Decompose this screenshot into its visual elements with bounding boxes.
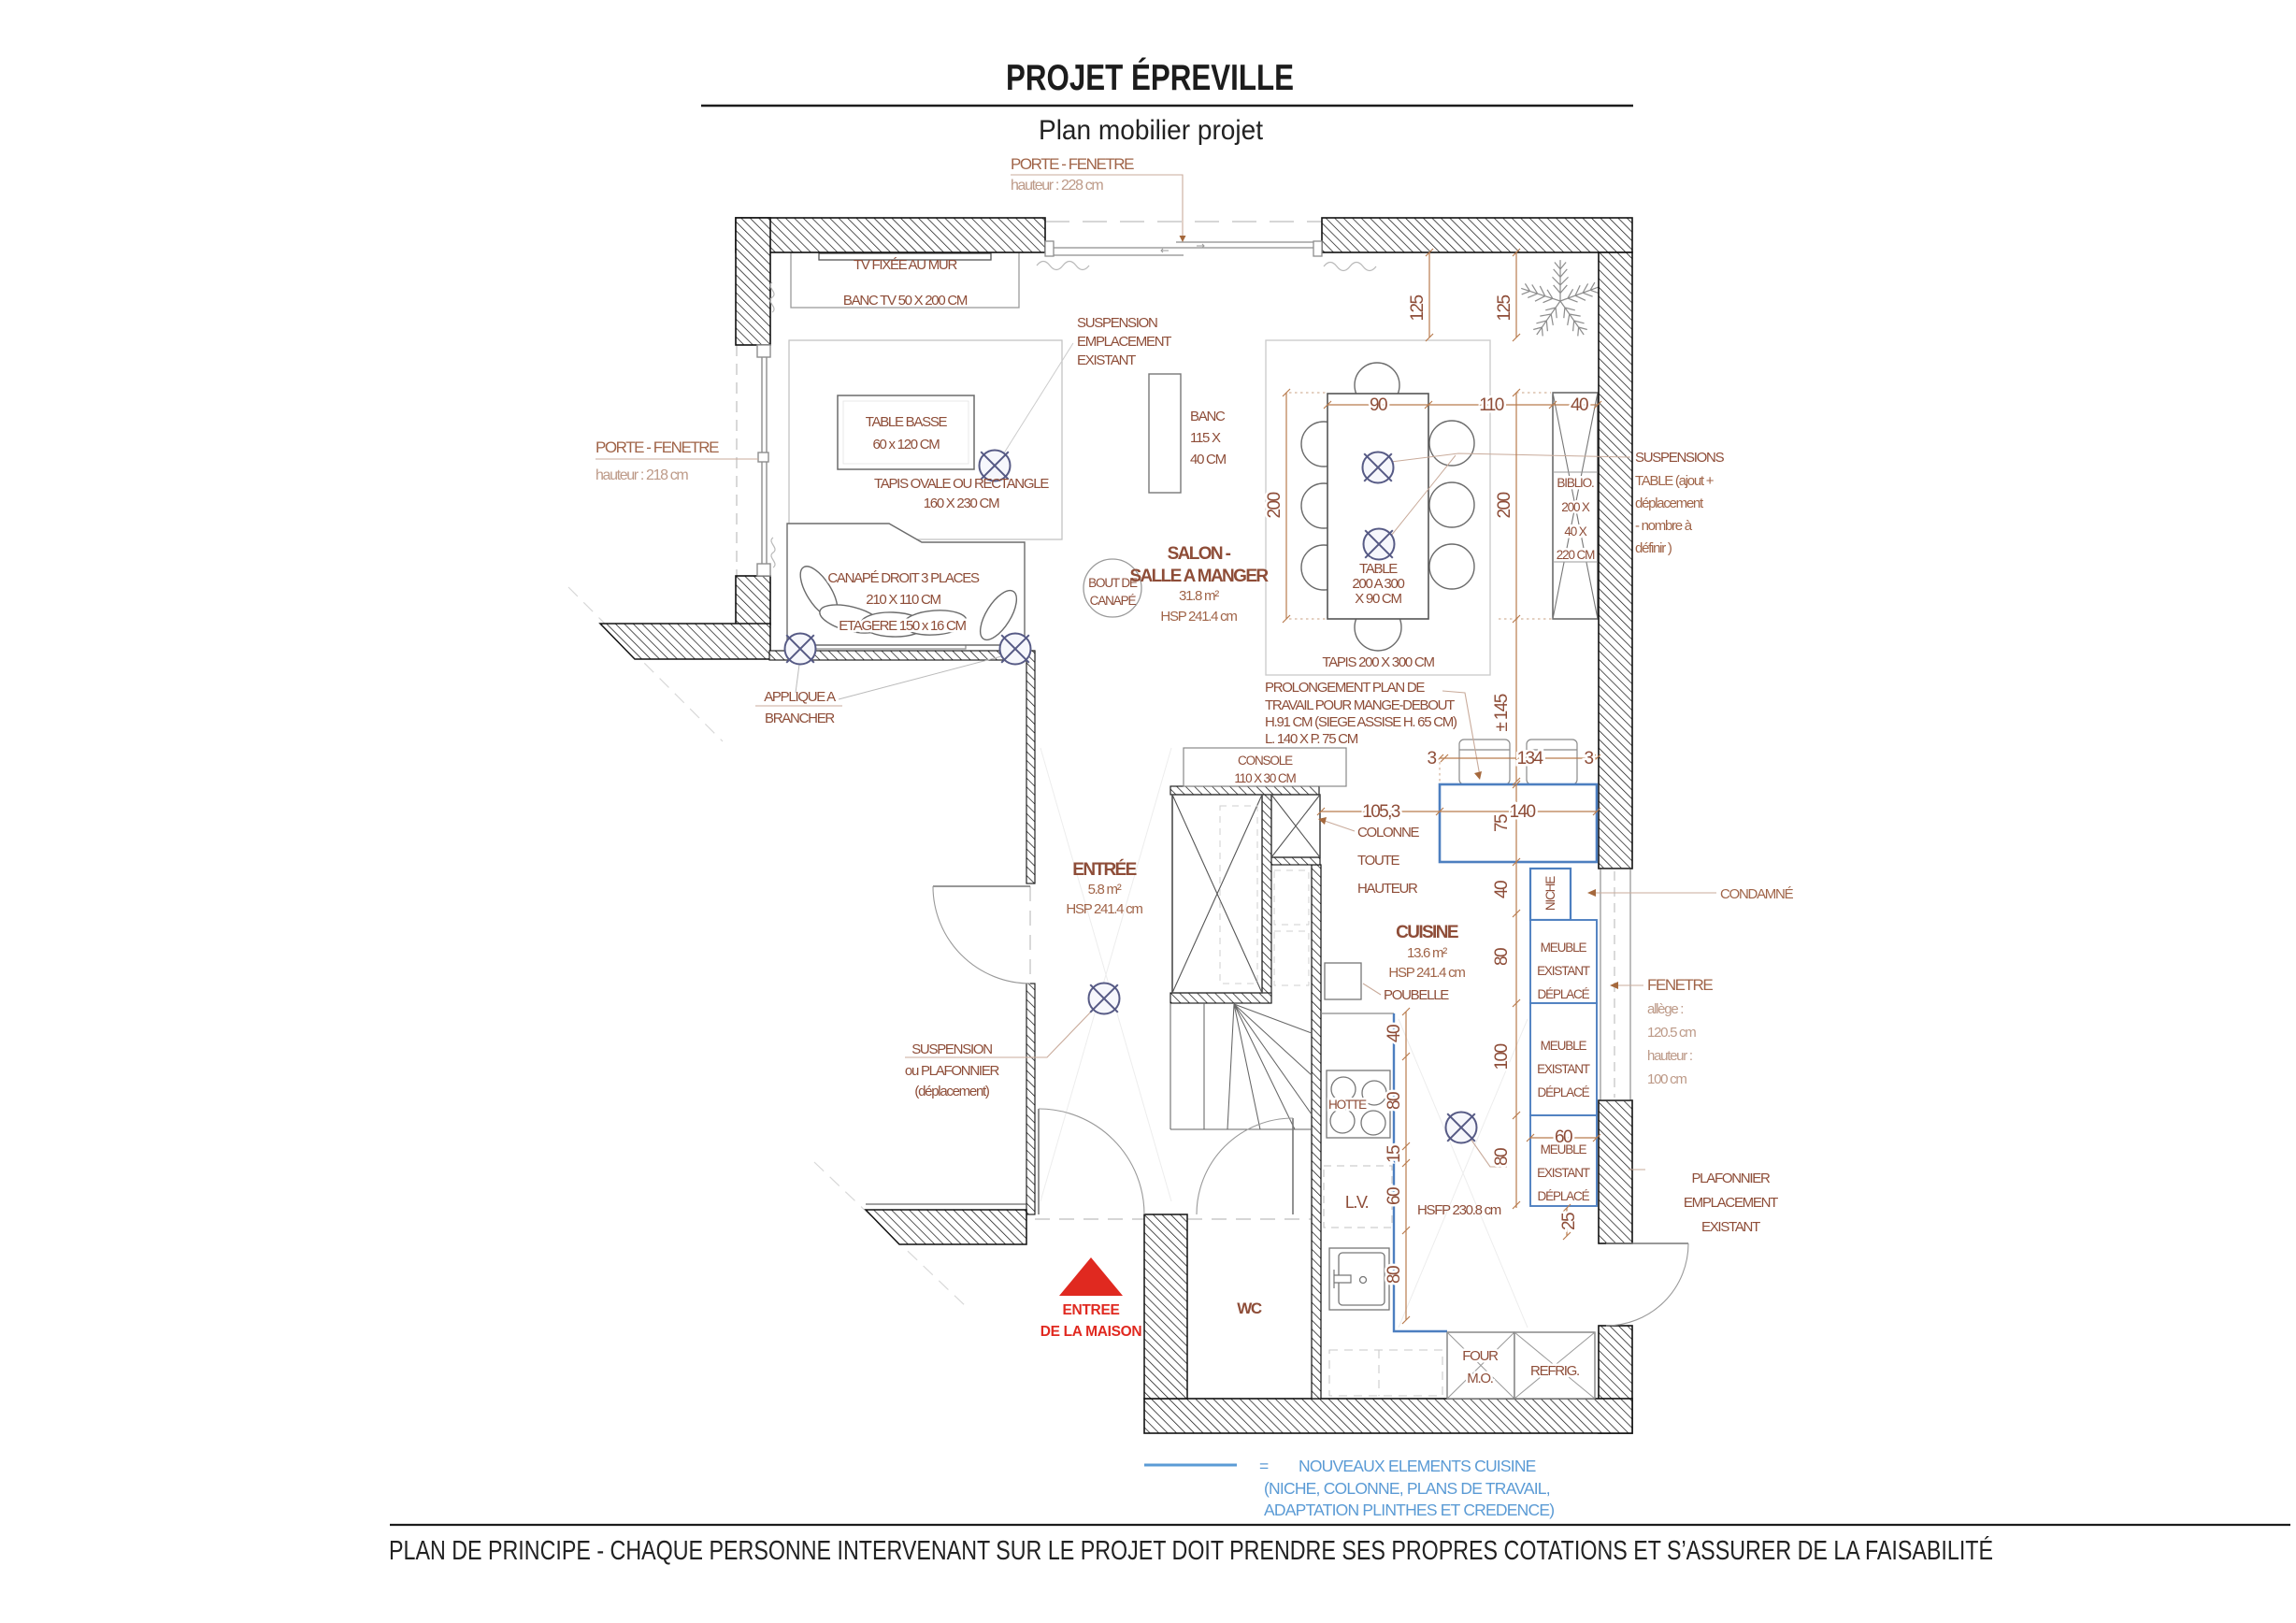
svg-text:60: 60 xyxy=(1385,1187,1404,1205)
svg-text:M.O.: M.O. xyxy=(1467,1371,1493,1386)
svg-text:TAPIS OVALE OU RECTANGLE: TAPIS OVALE OU RECTANGLE xyxy=(874,476,1049,492)
svg-text:75: 75 xyxy=(1492,814,1512,832)
svg-text:HAUTEUR: HAUTEUR xyxy=(1357,881,1418,897)
svg-text:200 A 300: 200 A 300 xyxy=(1352,576,1404,592)
svg-text:HOTTE: HOTTE xyxy=(1328,1098,1367,1112)
svg-text:DÉPLACÉ: DÉPLACÉ xyxy=(1538,1189,1590,1203)
svg-text:déplacement: déplacement xyxy=(1635,496,1704,511)
svg-text:NICHE: NICHE xyxy=(1543,876,1557,911)
svg-text:allège :: allège : xyxy=(1647,1001,1683,1017)
svg-text:200 X: 200 X xyxy=(1561,500,1590,514)
svg-text:40: 40 xyxy=(1385,1025,1404,1042)
svg-text:125: 125 xyxy=(1408,295,1428,322)
svg-text:hauteur :: hauteur : xyxy=(1647,1048,1692,1064)
svg-text:TABLE BASSE: TABLE BASSE xyxy=(866,414,948,430)
svg-text:(NICHE, COLONNE, PLANS DE TRAV: (NICHE, COLONNE, PLANS DE TRAVAIL, xyxy=(1264,1479,1550,1498)
svg-text:160 X 230 CM: 160 X 230 CM xyxy=(924,496,999,511)
svg-text:hauteur : 228 cm: hauteur : 228 cm xyxy=(1011,178,1103,194)
svg-text:FENETRE: FENETRE xyxy=(1647,976,1713,994)
svg-text:80: 80 xyxy=(1492,948,1512,966)
svg-text:BIBLIO.: BIBLIO. xyxy=(1557,476,1594,490)
svg-text:CUISINE: CUISINE xyxy=(1396,923,1458,942)
svg-text:TV FIXÉE AU MUR: TV FIXÉE AU MUR xyxy=(854,257,958,273)
svg-text:13.6 m²: 13.6 m² xyxy=(1407,945,1447,961)
svg-text:ETAGERE 150 x 16 CM: ETAGERE 150 x 16 CM xyxy=(839,618,966,634)
svg-text:NOUVEAUX ELEMENTS CUISINE: NOUVEAUX ELEMENTS CUISINE xyxy=(1299,1457,1536,1475)
svg-text:60: 60 xyxy=(1555,1127,1572,1147)
svg-text:15: 15 xyxy=(1385,1145,1404,1163)
svg-text:210 X 110 CM: 210 X 110 CM xyxy=(866,592,940,608)
svg-text:ou PLAFONNIER: ou PLAFONNIER xyxy=(905,1063,1000,1079)
svg-text:CANAPÉ DROIT 3 PLACES: CANAPÉ DROIT 3 PLACES xyxy=(827,570,980,586)
svg-text:WC: WC xyxy=(1237,1300,1262,1317)
svg-text:MEUBLE: MEUBLE xyxy=(1541,1039,1587,1053)
svg-text:SUSPENSIONS: SUSPENSIONS xyxy=(1635,450,1725,466)
svg-text:25: 25 xyxy=(1559,1213,1579,1230)
svg-text:TRAVAIL POUR MANGE-DEBOUT: TRAVAIL POUR MANGE-DEBOUT xyxy=(1265,697,1455,713)
svg-text:PROLONGEMENT PLAN DE: PROLONGEMENT PLAN DE xyxy=(1265,680,1425,696)
svg-text:40: 40 xyxy=(1571,395,1588,415)
svg-text:5.8 m²: 5.8 m² xyxy=(1088,882,1122,898)
svg-text:TAPIS 200 X 300 CM: TAPIS 200 X 300 CM xyxy=(1322,654,1434,670)
svg-text:hauteur : 218 cm: hauteur : 218 cm xyxy=(596,467,688,483)
svg-text:SUSPENSION: SUSPENSION xyxy=(1077,315,1157,331)
svg-text:EXISTANT: EXISTANT xyxy=(1537,964,1590,978)
svg-text:BANC TV 50 X 200 CM: BANC TV 50 X 200 CM xyxy=(843,293,968,309)
svg-text:PLAFONNIER: PLAFONNIER xyxy=(1691,1171,1771,1186)
svg-text:SALLE A MANGER: SALLE A MANGER xyxy=(1130,567,1270,586)
svg-text:EXISTANT: EXISTANT xyxy=(1077,352,1136,368)
svg-text:80: 80 xyxy=(1385,1092,1404,1110)
svg-text:40 X: 40 X xyxy=(1564,524,1586,539)
svg-text:H.91 CM (SIEGE ASSISE H. 65 CM: H.91 CM (SIEGE ASSISE H. 65 CM) xyxy=(1265,714,1457,730)
svg-text:POUBELLE: POUBELLE xyxy=(1384,987,1449,1003)
svg-text:APPLIQUE A: APPLIQUE A xyxy=(764,689,836,705)
svg-text:100: 100 xyxy=(1492,1044,1512,1070)
svg-text:HSP 241.4 cm: HSP 241.4 cm xyxy=(1066,901,1142,917)
svg-text:ENTREE: ENTREE xyxy=(1062,1302,1119,1318)
svg-text:115 X: 115 X xyxy=(1190,430,1221,446)
svg-text:60 x 120 CM: 60 x 120 CM xyxy=(872,437,940,452)
svg-text:L. 140 X P. 75 CM: L. 140 X P. 75 CM xyxy=(1265,731,1358,747)
svg-text:TABLE (ajout +: TABLE (ajout + xyxy=(1635,473,1715,489)
svg-text:DE LA MAISON: DE LA MAISON xyxy=(1040,1324,1142,1340)
svg-text:REFRIG.: REFRIG. xyxy=(1530,1363,1579,1379)
svg-text:31.8 m²: 31.8 m² xyxy=(1179,588,1219,604)
svg-text:120.5 cm: 120.5 cm xyxy=(1647,1025,1696,1041)
svg-text:134: 134 xyxy=(1517,749,1544,768)
svg-text:HSFP 230.8 cm: HSFP 230.8 cm xyxy=(1417,1202,1501,1218)
svg-text:DÉPLACÉ: DÉPLACÉ xyxy=(1538,987,1590,1001)
svg-text:TABLE: TABLE xyxy=(1359,561,1398,577)
svg-text:CONSOLE: CONSOLE xyxy=(1238,754,1293,768)
svg-text:ENTRÉE: ENTRÉE xyxy=(1072,859,1136,880)
svg-text:PROJET ÉPREVILLE: PROJET ÉPREVILLE xyxy=(1006,57,1294,98)
svg-text:± 145: ± 145 xyxy=(1492,694,1512,731)
svg-text:220 CM: 220 CM xyxy=(1557,548,1595,562)
svg-text:TOUTE: TOUTE xyxy=(1357,853,1399,869)
svg-text:125: 125 xyxy=(1495,295,1514,322)
svg-text:- nombre à: - nombre à xyxy=(1635,518,1693,534)
svg-text:DÉPLACÉ: DÉPLACÉ xyxy=(1538,1085,1590,1099)
svg-text:PORTE - FENETRE: PORTE - FENETRE xyxy=(596,438,719,456)
svg-text:L.V.: L.V. xyxy=(1345,1193,1369,1212)
svg-text:SUSPENSION: SUSPENSION xyxy=(911,1041,992,1057)
svg-text:110 X 30 CM: 110 X 30 CM xyxy=(1234,771,1296,785)
svg-text:Plan mobilier projet: Plan mobilier projet xyxy=(1039,115,1264,146)
svg-text:110: 110 xyxy=(1479,395,1503,415)
svg-text:200: 200 xyxy=(1495,493,1514,519)
svg-text:EMPLACEMENT: EMPLACEMENT xyxy=(1077,334,1171,350)
svg-text:définir ): définir ) xyxy=(1635,540,1672,556)
svg-text:EMPLACEMENT: EMPLACEMENT xyxy=(1684,1195,1778,1211)
svg-text:EXISTANT: EXISTANT xyxy=(1701,1219,1760,1235)
svg-text:80: 80 xyxy=(1492,1148,1512,1166)
svg-text:3: 3 xyxy=(1428,749,1437,768)
svg-text:ADAPTATION PLINTHES ET CREDENC: ADAPTATION PLINTHES ET CREDENCE) xyxy=(1264,1501,1554,1519)
svg-text:PLAN DE PRINCIPE - CHAQUE PERS: PLAN DE PRINCIPE - CHAQUE PERSONNE INTER… xyxy=(389,1535,1993,1566)
svg-text:PORTE - FENETRE: PORTE - FENETRE xyxy=(1011,155,1134,173)
svg-text:BANC: BANC xyxy=(1190,409,1226,424)
svg-text:(déplacement): (déplacement) xyxy=(914,1084,990,1099)
svg-text:HSP 241.4 cm: HSP 241.4 cm xyxy=(1160,609,1237,625)
svg-text:200: 200 xyxy=(1265,493,1284,519)
svg-text:FOUR: FOUR xyxy=(1462,1348,1499,1364)
svg-text:COLONNE: COLONNE xyxy=(1357,825,1420,840)
svg-text:MEUBLE: MEUBLE xyxy=(1541,941,1587,955)
svg-text:EXISTANT: EXISTANT xyxy=(1537,1062,1590,1076)
svg-text:BRANCHER: BRANCHER xyxy=(765,711,835,726)
svg-text:=: = xyxy=(1259,1457,1269,1475)
svg-text:90: 90 xyxy=(1370,395,1387,415)
svg-text:140: 140 xyxy=(1510,802,1536,822)
svg-text:40 CM: 40 CM xyxy=(1190,452,1227,467)
svg-text:SALON -: SALON - xyxy=(1168,544,1231,564)
svg-text:HSP 241.4 cm: HSP 241.4 cm xyxy=(1388,965,1465,981)
svg-text:X 90 CM: X 90 CM xyxy=(1355,591,1401,607)
svg-text:3: 3 xyxy=(1585,749,1594,768)
svg-text:80: 80 xyxy=(1385,1266,1404,1284)
svg-text:CONDAMNÉ: CONDAMNÉ xyxy=(1720,886,1794,902)
svg-text:105,3: 105,3 xyxy=(1362,802,1400,822)
svg-text:100 cm: 100 cm xyxy=(1647,1071,1686,1087)
svg-text:40: 40 xyxy=(1492,881,1512,898)
svg-text:CANAPÉ: CANAPÉ xyxy=(1090,594,1137,608)
svg-text:EXISTANT: EXISTANT xyxy=(1537,1166,1590,1180)
